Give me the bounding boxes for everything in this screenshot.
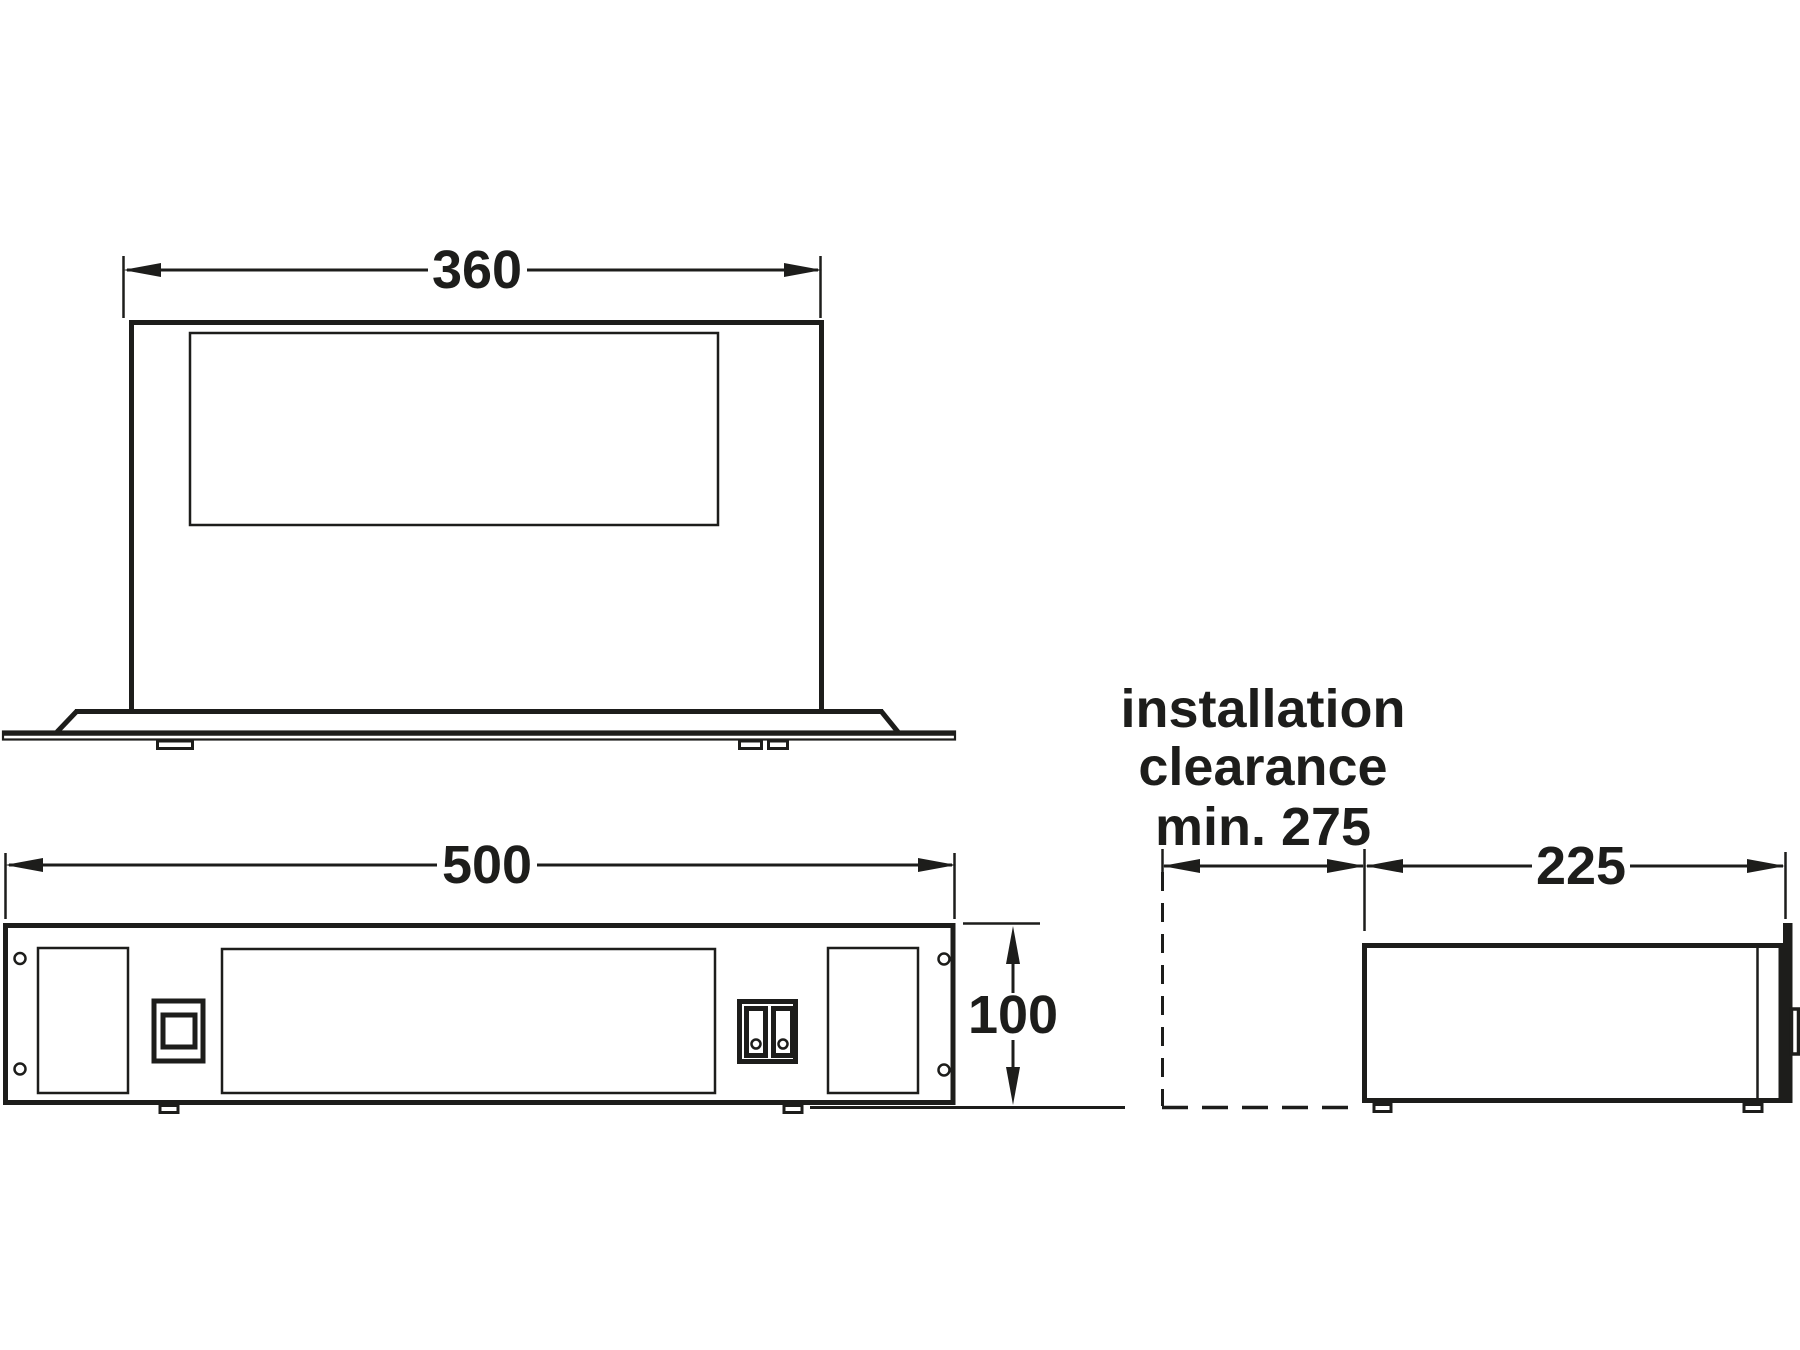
- dim-225-label: 225: [1536, 836, 1626, 896]
- top-view-flange: [57, 711, 898, 732]
- arrow-left-icon: [123, 263, 161, 277]
- dim-500: 500: [5, 835, 956, 919]
- push-button-cap: [163, 1015, 195, 1047]
- rocker-dot-icon: [779, 1040, 788, 1049]
- screw-hole: [939, 954, 950, 965]
- rocker-switches: [740, 1002, 796, 1062]
- clearance-note-line1: installation: [1120, 679, 1405, 739]
- top-view: 360: [3, 240, 955, 749]
- clearance-note-line2: clearance: [1138, 737, 1387, 797]
- arrow-up-icon: [1006, 926, 1020, 964]
- mounting-foot: [1374, 1105, 1391, 1112]
- clearance-note-line3: min. 275: [1155, 797, 1371, 857]
- mounting-foot: [160, 1106, 178, 1113]
- dim-500-label: 500: [442, 835, 532, 895]
- screw-hole: [15, 953, 26, 964]
- dim-100-label: 100: [968, 985, 1058, 1045]
- front-center-panel: [222, 949, 715, 1093]
- screw-hole: [15, 1064, 26, 1075]
- mounting-foot: [769, 741, 788, 749]
- mounting-foot: [740, 741, 762, 749]
- flange-bevel-left: [57, 711, 77, 732]
- arrow-right-icon: [784, 263, 822, 277]
- front-left-panel: [38, 948, 128, 1093]
- arrow-left-icon: [1365, 859, 1403, 873]
- screw-hole: [939, 1065, 950, 1076]
- arrow-left-icon: [1162, 859, 1200, 873]
- flange-bevel-right: [881, 711, 898, 732]
- side-view-housing: [1365, 946, 1782, 1101]
- mounting-foot: [1744, 1105, 1762, 1112]
- front-right-panel: [828, 948, 918, 1093]
- technical-drawing: 360 500: [0, 0, 1800, 1350]
- side-view-group: 225: [1162, 836, 1799, 1112]
- arrow-left-icon: [5, 858, 43, 872]
- clearance-note: installation clearance min. 275: [1120, 679, 1405, 857]
- front-view: 500: [5, 835, 1125, 1113]
- top-view-cutout: [190, 333, 718, 525]
- arrow-right-icon: [1327, 859, 1365, 873]
- arrow-down-icon: [1006, 1067, 1020, 1105]
- push-button: [154, 1001, 203, 1061]
- dim-360-label: 360: [432, 240, 522, 300]
- rocker-dot-icon: [752, 1040, 761, 1049]
- dashed-clearance-outline: [1162, 872, 1362, 1108]
- arrow-right-icon: [1747, 859, 1785, 873]
- mounting-plate: [3, 732, 955, 740]
- dim-225: 225: [1365, 836, 1786, 931]
- drawing-canvas: 360 500: [0, 0, 1800, 1350]
- mounting-foot: [158, 741, 193, 749]
- dim-360: 360: [123, 240, 822, 318]
- mounting-foot: [784, 1106, 802, 1113]
- arrow-right-icon: [918, 858, 956, 872]
- side-view-connector-tab: [1792, 1009, 1799, 1054]
